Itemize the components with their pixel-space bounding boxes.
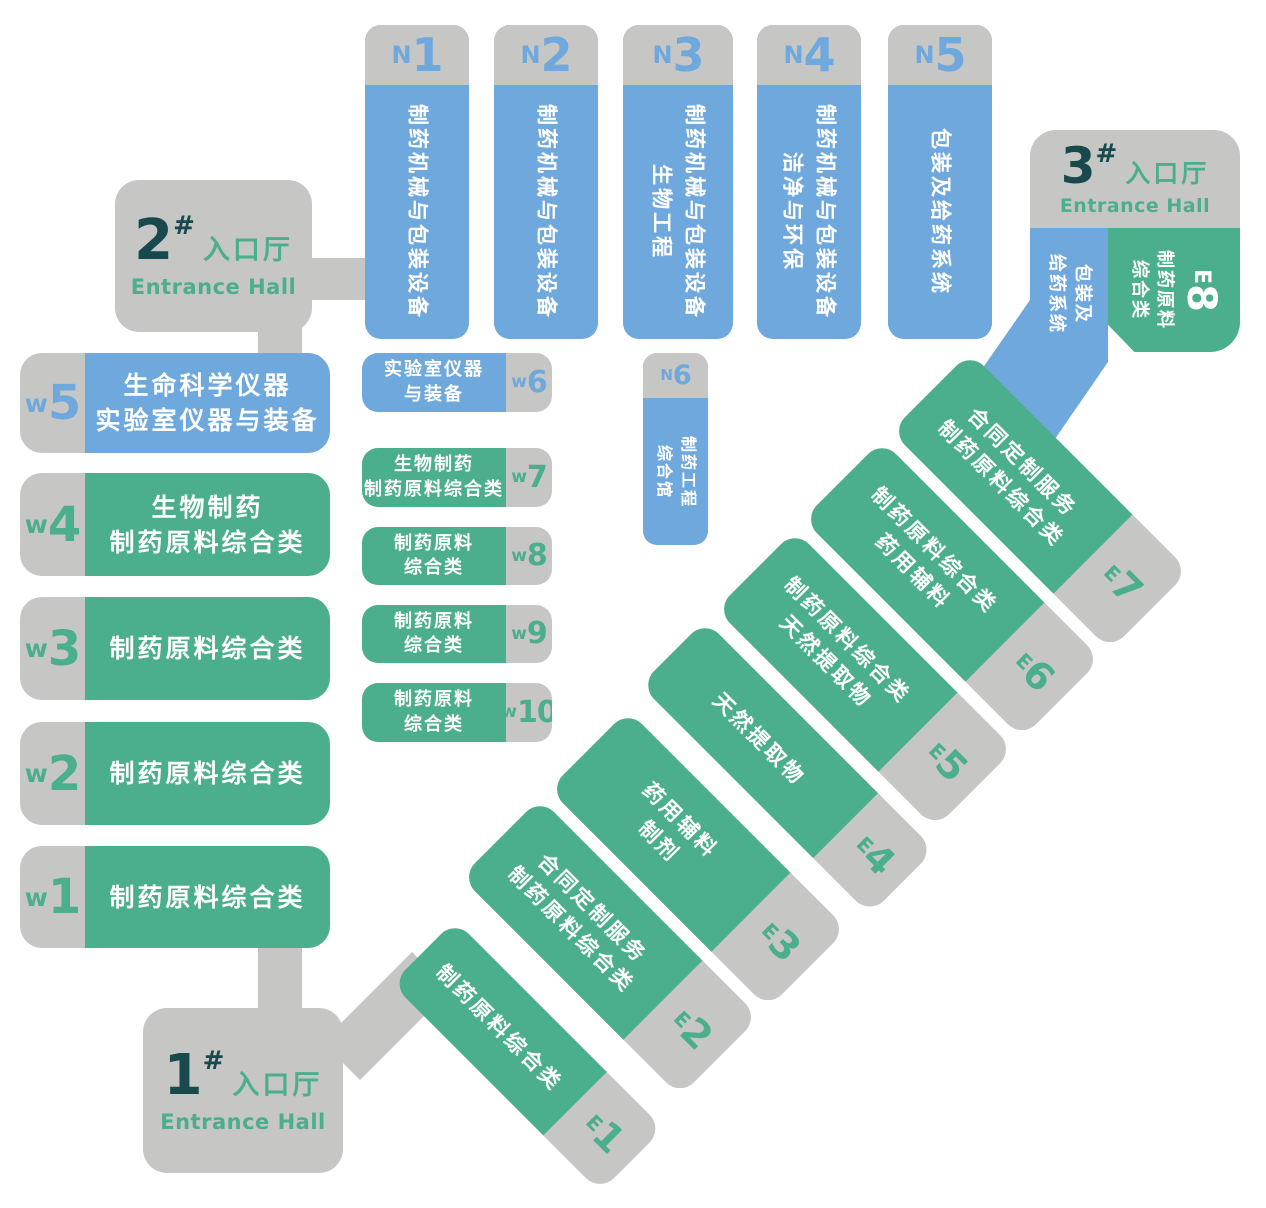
- hall-e8: E8 制药原料综合类: [1108, 228, 1240, 352]
- hall-w5-category: 生命科学仪器实验室仪器与装备: [85, 353, 330, 453]
- hall-w9: 制药原料综合类 w9: [362, 605, 552, 663]
- hall-e8-category: 制药原料综合类: [1127, 250, 1177, 330]
- hall-n5-label: N5: [888, 25, 992, 85]
- hall-w6-label: w6: [506, 353, 552, 412]
- hall-n2-category: 制药机械与包装设备: [530, 104, 563, 320]
- hall-n1-category: 制药机械与包装设备: [401, 104, 434, 320]
- hall-w8-category: 制药原料综合类: [362, 527, 506, 585]
- hall-w4-category: 生物制药制药原料综合类: [85, 473, 330, 576]
- hall-n2: N2 制药机械与包装设备: [494, 25, 598, 339]
- hall-w1-label: w1: [20, 846, 85, 948]
- hall-w3-label: w3: [20, 597, 85, 700]
- hall-w8-label: w8: [506, 527, 552, 585]
- hall-n2-label: N2: [494, 25, 598, 85]
- exhibition-floor-map: N1 制药机械与包装设备 N2 制药机械与包装设备 N3 制药机械与包装设备生物…: [0, 0, 1266, 1208]
- entrance-1-en: Entrance Hall: [160, 1110, 325, 1134]
- hall-n4: N4 制药机械与包装设备洁净与环保: [757, 25, 861, 339]
- hall-w1: w1 制药原料综合类: [20, 846, 330, 948]
- hall-n4-category: 制药机械与包装设备洁净与环保: [776, 104, 841, 320]
- hall-w2-category: 制药原料综合类: [85, 722, 330, 825]
- hall-w1-category: 制药原料综合类: [85, 846, 330, 948]
- hall-n3: N3 制药机械与包装设备生物工程: [623, 25, 733, 339]
- hall-w7-label: w7: [506, 448, 552, 507]
- hall-n4-label: N4: [757, 25, 861, 85]
- hall-w9-category: 制药原料综合类: [362, 605, 506, 663]
- hall-w4: w4 生物制药制药原料综合类: [20, 473, 330, 576]
- hall-n5: N5 包装及给药系统: [888, 25, 992, 339]
- entrance-hall-3: 3#入口厅 Entrance Hall: [1030, 130, 1240, 228]
- entrance-3-hash: #: [1095, 141, 1117, 167]
- hall-w5-label: w5: [20, 353, 85, 453]
- hall-n3-category: 制药机械与包装设备生物工程: [645, 104, 710, 320]
- entrance-1-number: 1: [164, 1048, 203, 1104]
- entrance-3-cn: 入口厅: [1125, 161, 1209, 186]
- entrance-1-cn: 入口厅: [232, 1072, 322, 1099]
- entrance-1-hash: #: [203, 1048, 225, 1074]
- hall-n6-label: N6: [643, 353, 708, 398]
- entrance-3-number: 3: [1061, 141, 1096, 191]
- entrance-hall-1: 1#入口厅 Entrance Hall: [143, 1008, 343, 1173]
- hall-w7-category: 生物制药制药原料综合类: [362, 448, 506, 507]
- hall-w10: 制药原料综合类 w10: [362, 683, 552, 742]
- hall-w3-category: 制药原料综合类: [85, 597, 330, 700]
- entrance-hall-2: 2#入口厅 Entrance Hall: [115, 180, 312, 332]
- hall-w7: 生物制药制药原料综合类 w7: [362, 448, 552, 507]
- entrance-3-en: Entrance Hall: [1060, 195, 1210, 217]
- hall-w9-label: w9: [506, 605, 552, 663]
- hall-w8: 制药原料综合类 w8: [362, 527, 552, 585]
- hall-w5: w5 生命科学仪器实验室仪器与装备: [20, 353, 330, 453]
- hall-w6: 实验室仪器与装备 w6: [362, 353, 552, 412]
- hall-w4-label: w4: [20, 473, 85, 576]
- hall-e8-packaging-strip: 包装及给药系统: [1030, 228, 1108, 360]
- hall-n6-category: 制药工程综合馆: [652, 435, 700, 507]
- hall-w3: w3 制药原料综合类: [20, 597, 330, 700]
- entrance-2-cn: 入口厅: [203, 237, 293, 264]
- hall-n5-category: 包装及给药系统: [924, 128, 957, 296]
- hall-w10-category: 制药原料综合类: [362, 683, 506, 742]
- entrance-2-en: Entrance Hall: [131, 275, 296, 299]
- entrance-2-hash: #: [173, 213, 195, 239]
- hall-n3-label: N3: [623, 25, 733, 85]
- hall-e8-strip-category: 包装及给药系统: [1043, 254, 1095, 334]
- entrance-2-number: 2: [134, 213, 173, 269]
- hall-n1-label: N1: [365, 25, 469, 85]
- hall-n1: N1 制药机械与包装设备: [365, 25, 469, 339]
- connector-w1-entrance1: [258, 944, 302, 1014]
- hall-w2: w2 制药原料综合类: [20, 722, 330, 825]
- hall-n6: N6 制药工程综合馆: [643, 353, 708, 545]
- hall-w2-label: w2: [20, 722, 85, 825]
- hall-e8-label: E8: [1181, 250, 1221, 330]
- hall-w6-category: 实验室仪器与装备: [362, 353, 506, 412]
- hall-w10-label: w10: [506, 683, 552, 742]
